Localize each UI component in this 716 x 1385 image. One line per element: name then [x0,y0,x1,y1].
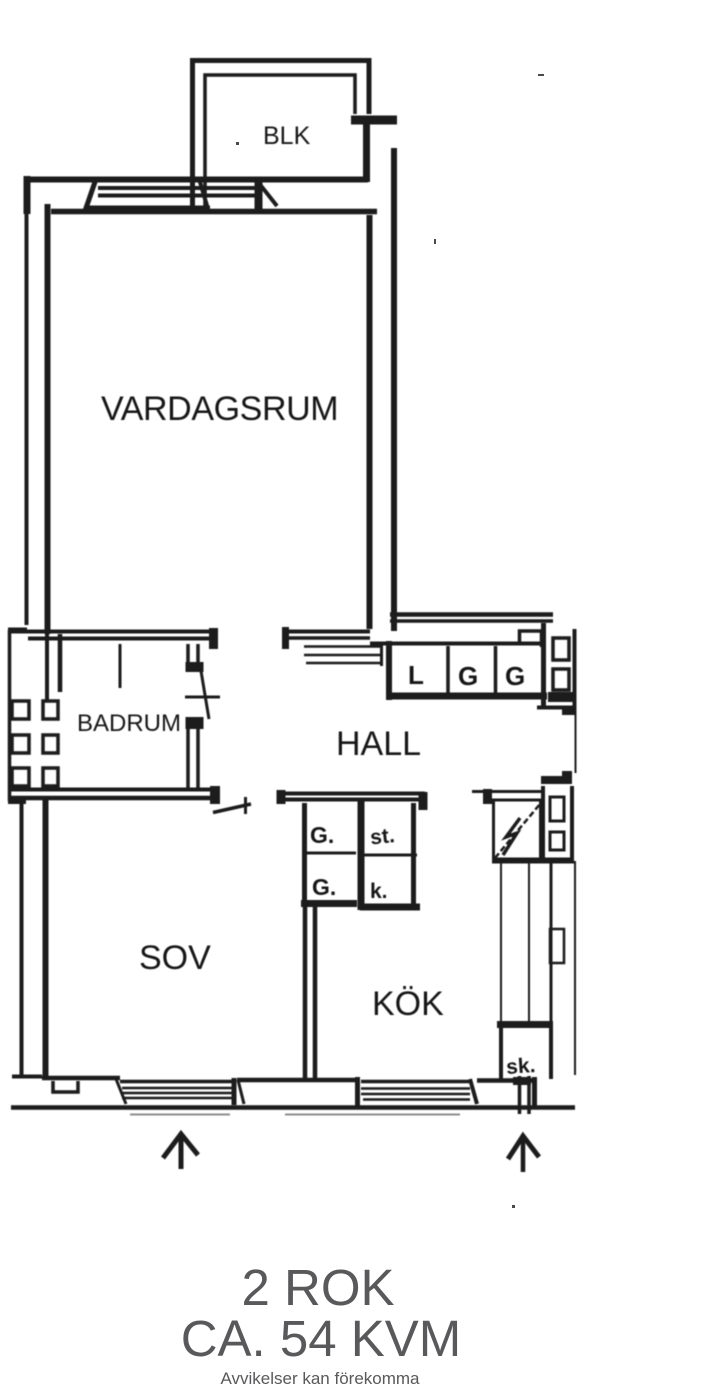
svg-text:L: L [408,660,424,690]
svg-text:G: G [505,661,525,691]
svg-text:2 ROK: 2 ROK [241,1259,394,1316]
svg-text:k.: k. [370,880,388,903]
svg-text:st.: st. [369,824,396,849]
svg-text:sk.: sk. [505,1054,536,1079]
svg-text:VARDAGSRUM: VARDAGSRUM [101,390,338,428]
svg-text:G.: G. [310,822,334,848]
svg-text:SOV: SOV [139,939,211,977]
svg-text:G.: G. [312,874,336,900]
svg-text:Avvikelser kan förekomma: Avvikelser kan förekomma [220,1369,420,1385]
svg-text:KÖK: KÖK [372,985,444,1023]
svg-text:G: G [458,661,478,691]
svg-text:HALL: HALL [336,725,421,763]
svg-text:BLK: BLK [263,122,311,150]
svg-text:CA. 54 KVM: CA. 54 KVM [181,1310,462,1367]
svg-text:BADRUM: BADRUM [77,710,181,737]
